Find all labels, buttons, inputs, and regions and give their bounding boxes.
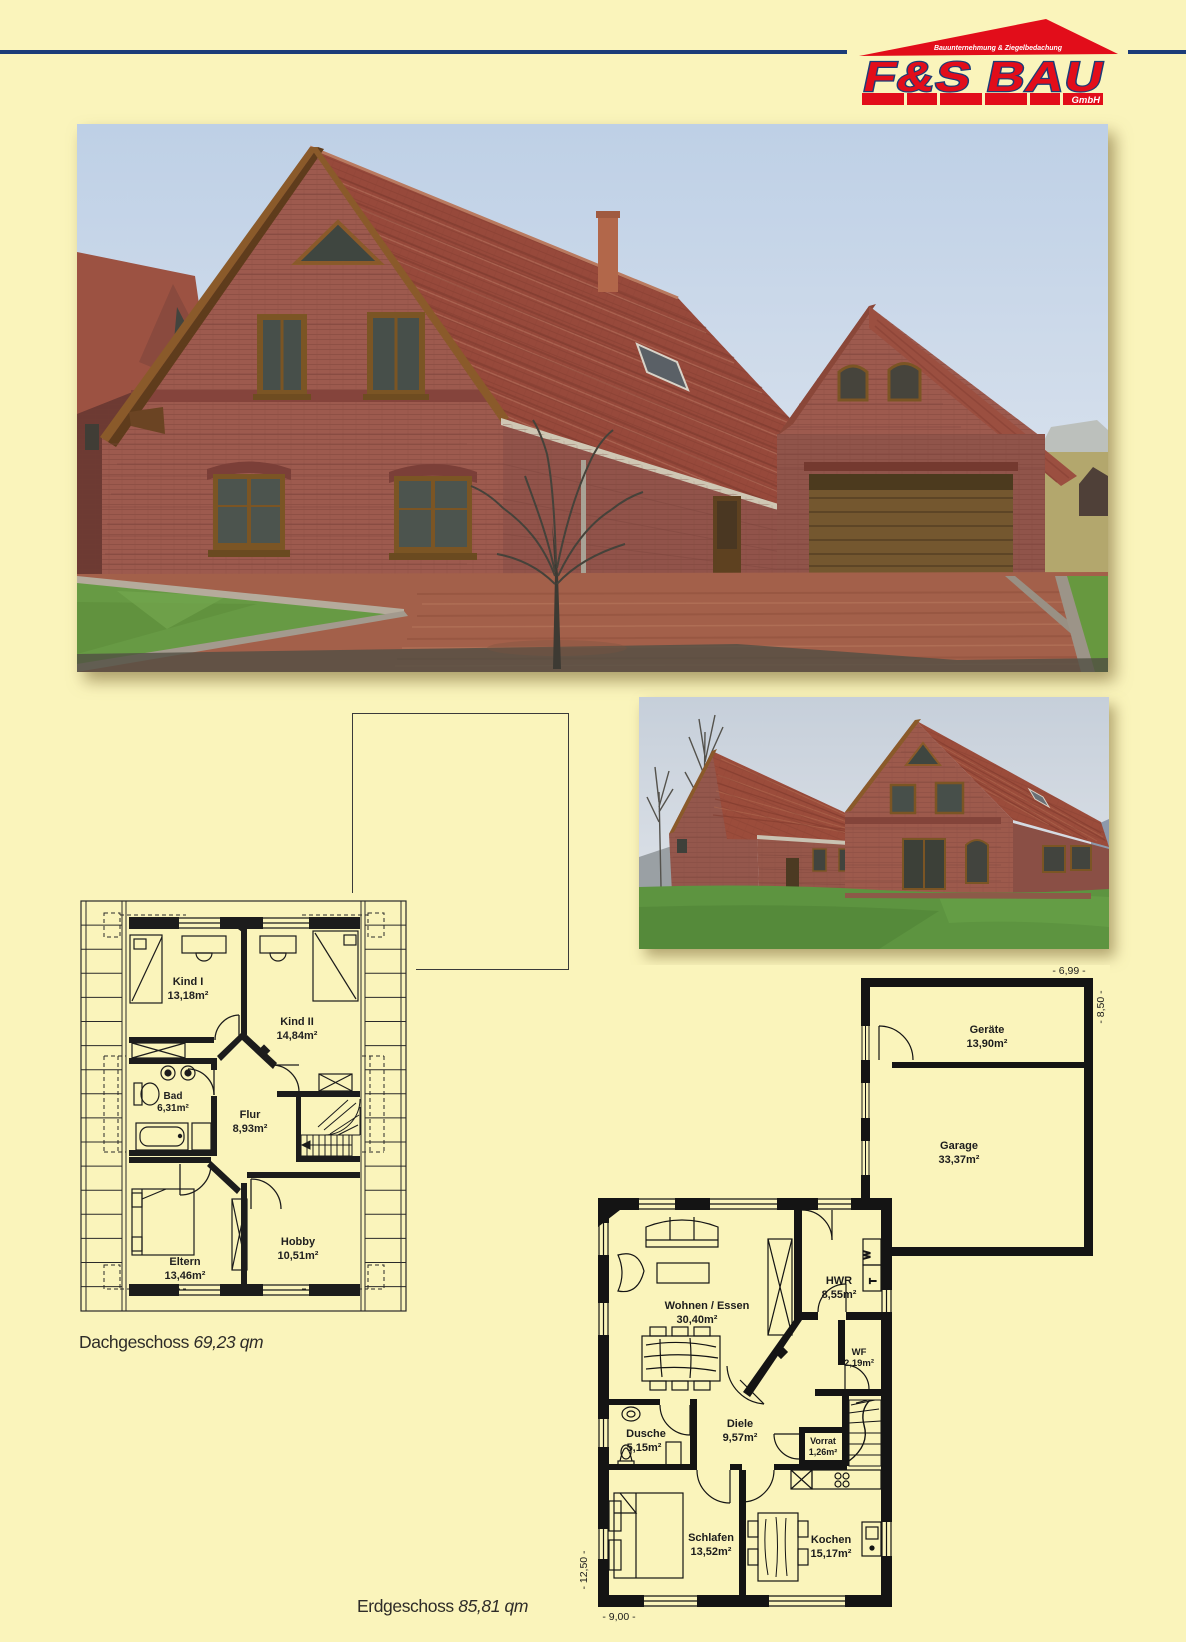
svg-text:Garage: Garage xyxy=(940,1140,978,1152)
svg-text:- 8,50 -: - 8,50 - xyxy=(1095,990,1107,1024)
svg-text:13,90m²: 13,90m² xyxy=(967,1038,1008,1050)
svg-text:Geräte: Geräte xyxy=(970,1024,1005,1036)
svg-text:Bad: Bad xyxy=(164,1091,183,1102)
svg-text:T: T xyxy=(868,1278,878,1284)
svg-text:Dusche: Dusche xyxy=(626,1428,666,1440)
svg-text:8,93m²: 8,93m² xyxy=(233,1123,268,1135)
svg-text:2,19m²: 2,19m² xyxy=(844,1358,874,1369)
svg-text:HWR: HWR xyxy=(826,1275,852,1287)
svg-text:GmbH: GmbH xyxy=(1072,95,1102,106)
svg-text:Hobby: Hobby xyxy=(281,1236,316,1248)
svg-text:Bauunternehmung & Ziegelbedach: Bauunternehmung & Ziegelbedachung xyxy=(934,43,1063,52)
svg-text:Kind II: Kind II xyxy=(280,1016,314,1028)
svg-text:5,15m²: 5,15m² xyxy=(627,1442,662,1454)
svg-text:15,17m²: 15,17m² xyxy=(811,1548,852,1560)
svg-text:Vorrat: Vorrat xyxy=(810,1436,836,1446)
svg-text:Kind I: Kind I xyxy=(173,976,204,988)
svg-text:W: W xyxy=(862,1250,872,1259)
svg-text:- 12,50 -: - 12,50 - xyxy=(580,1550,590,1590)
svg-text:1,26m²: 1,26m² xyxy=(809,1447,838,1457)
svg-text:Kochen: Kochen xyxy=(811,1534,852,1546)
svg-text:Schlafen: Schlafen xyxy=(688,1532,734,1544)
svg-text:- 9,00 -: - 9,00 - xyxy=(602,1611,636,1623)
svg-text:Flur: Flur xyxy=(240,1109,261,1121)
svg-text:9,57m²: 9,57m² xyxy=(723,1432,758,1444)
svg-text:13,46m²: 13,46m² xyxy=(165,1270,206,1282)
svg-text:13,52m²: 13,52m² xyxy=(691,1546,732,1558)
svg-text:WF: WF xyxy=(852,1347,867,1358)
svg-text:Wohnen / Essen: Wohnen / Essen xyxy=(665,1300,750,1312)
svg-text:14,84m²: 14,84m² xyxy=(277,1030,318,1042)
svg-text:6,31m²: 6,31m² xyxy=(157,1103,189,1114)
svg-text:Eltern: Eltern xyxy=(169,1256,200,1268)
svg-text:30,40m²: 30,40m² xyxy=(677,1314,718,1326)
svg-text:Diele: Diele xyxy=(727,1418,753,1430)
svg-text:13,18m²: 13,18m² xyxy=(168,990,209,1002)
svg-text:- 6,99 -: - 6,99 - xyxy=(1052,965,1086,977)
svg-text:8,55m²: 8,55m² xyxy=(822,1289,857,1301)
svg-text:10,51m²: 10,51m² xyxy=(278,1250,319,1262)
svg-text:F&S BAU: F&S BAU xyxy=(859,53,1109,99)
svg-text:33,37m²: 33,37m² xyxy=(939,1154,980,1166)
